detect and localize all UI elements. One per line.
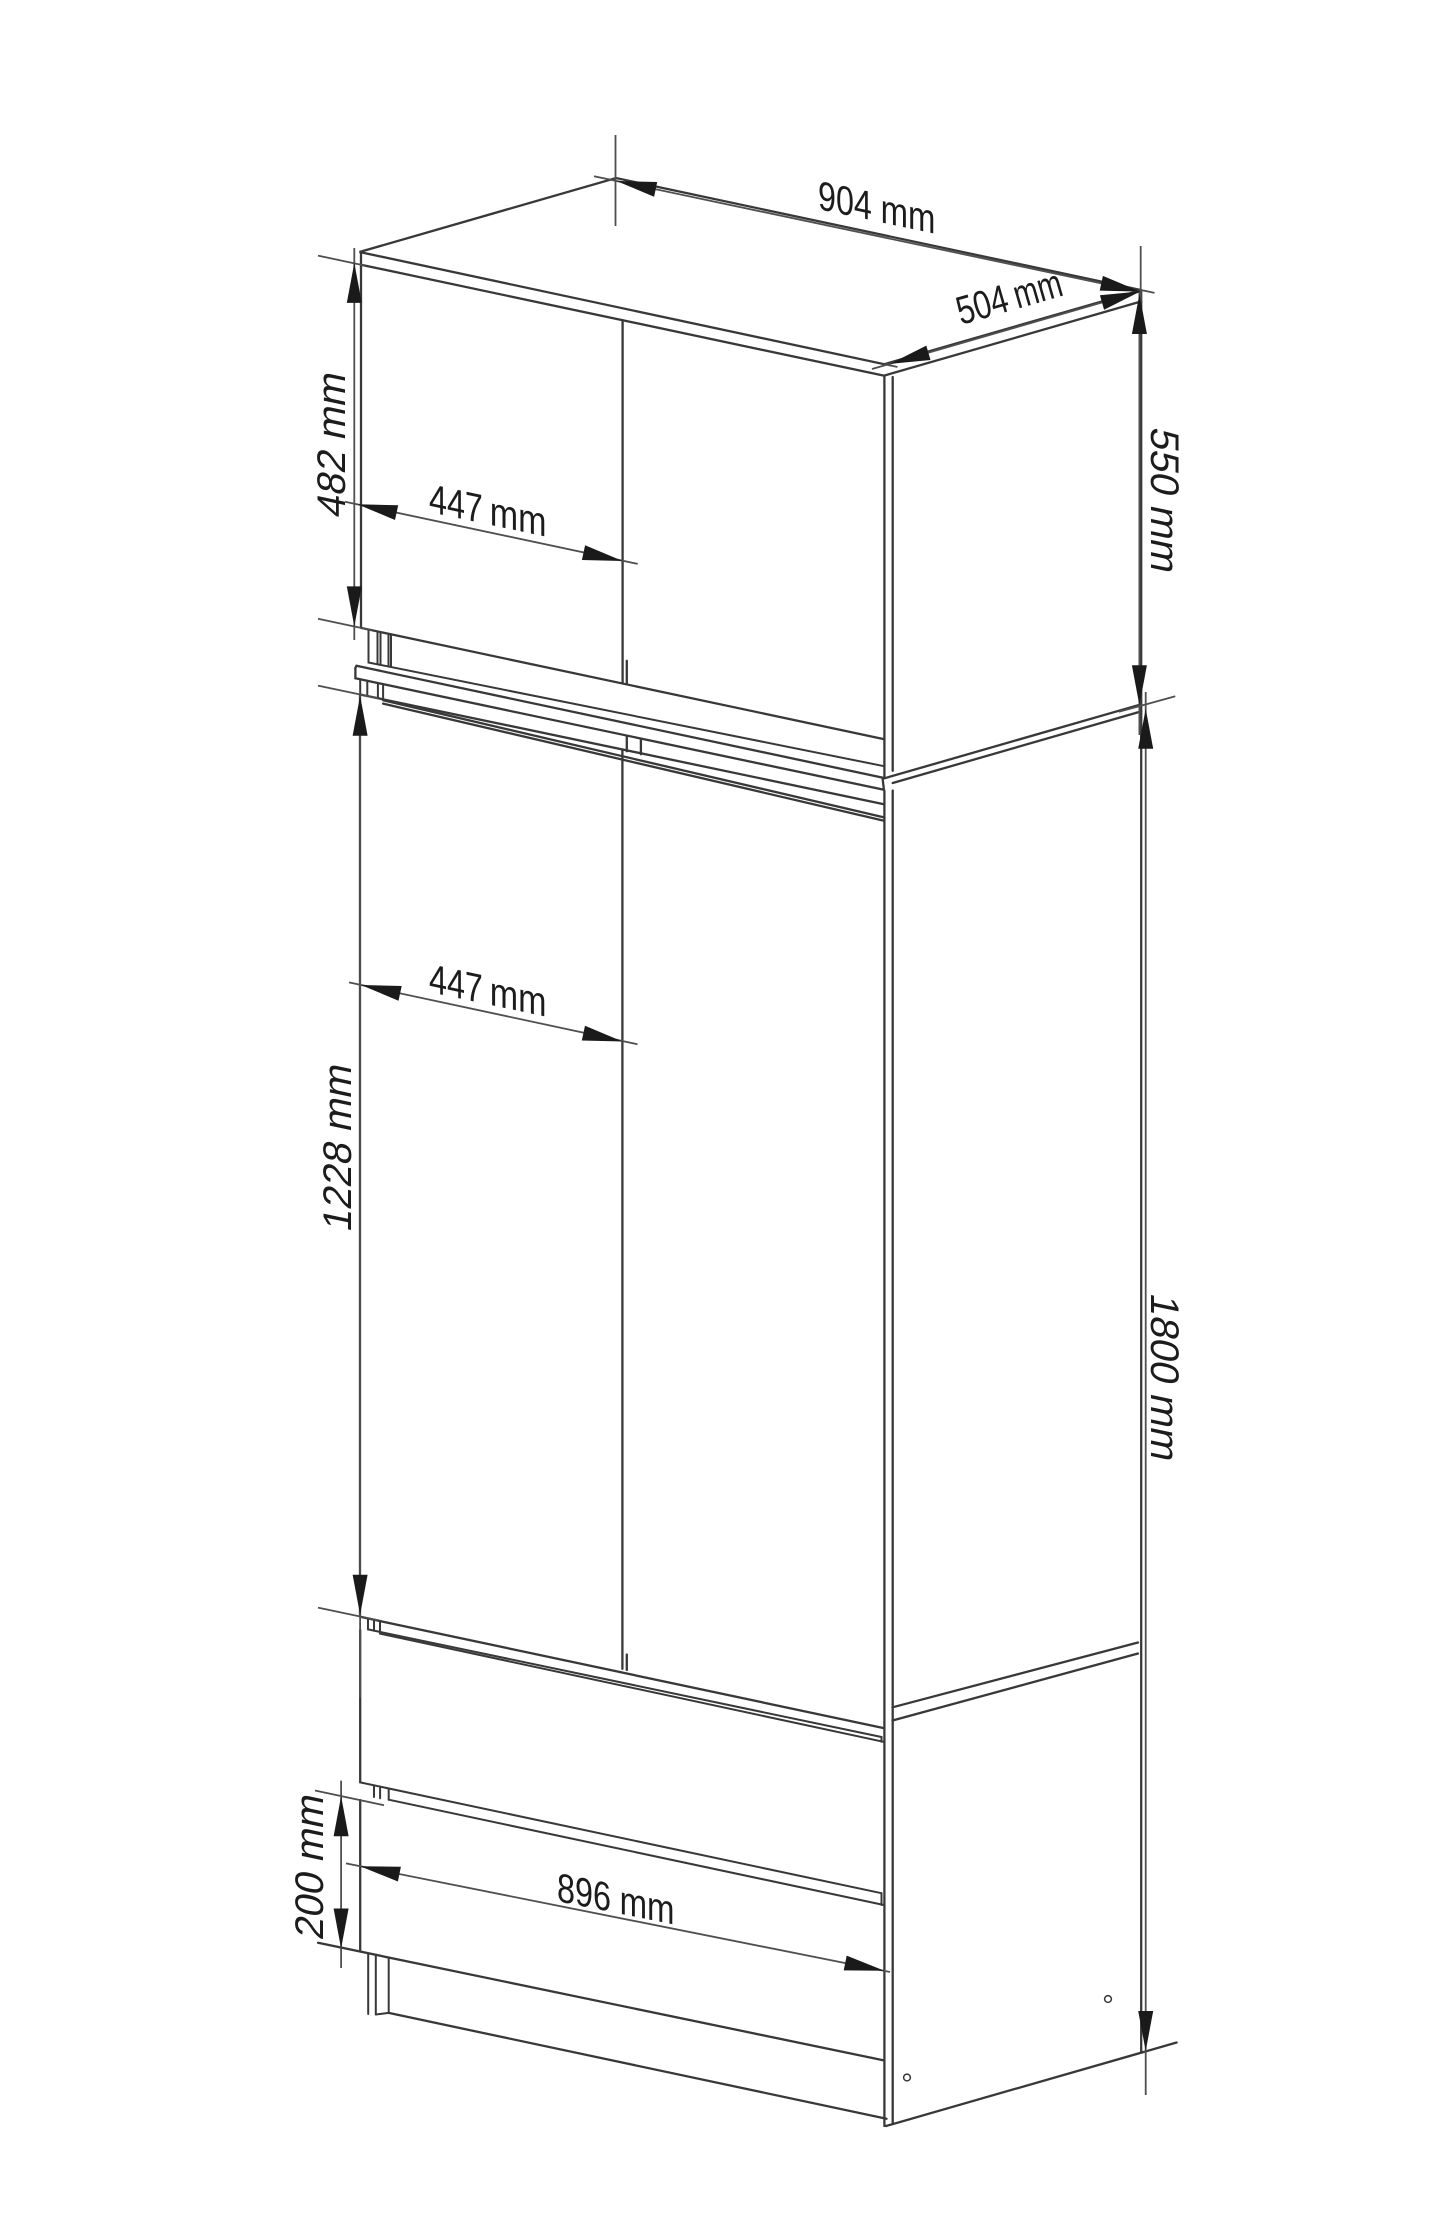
- svg-text:550 mm: 550 mm: [1142, 424, 1187, 578]
- svg-text:1800 mm: 1800 mm: [1142, 1290, 1187, 1466]
- svg-text:482 mm: 482 mm: [308, 367, 353, 521]
- svg-text:200 mm: 200 mm: [286, 1789, 331, 1943]
- svg-text:1228 mm: 1228 mm: [314, 1059, 359, 1235]
